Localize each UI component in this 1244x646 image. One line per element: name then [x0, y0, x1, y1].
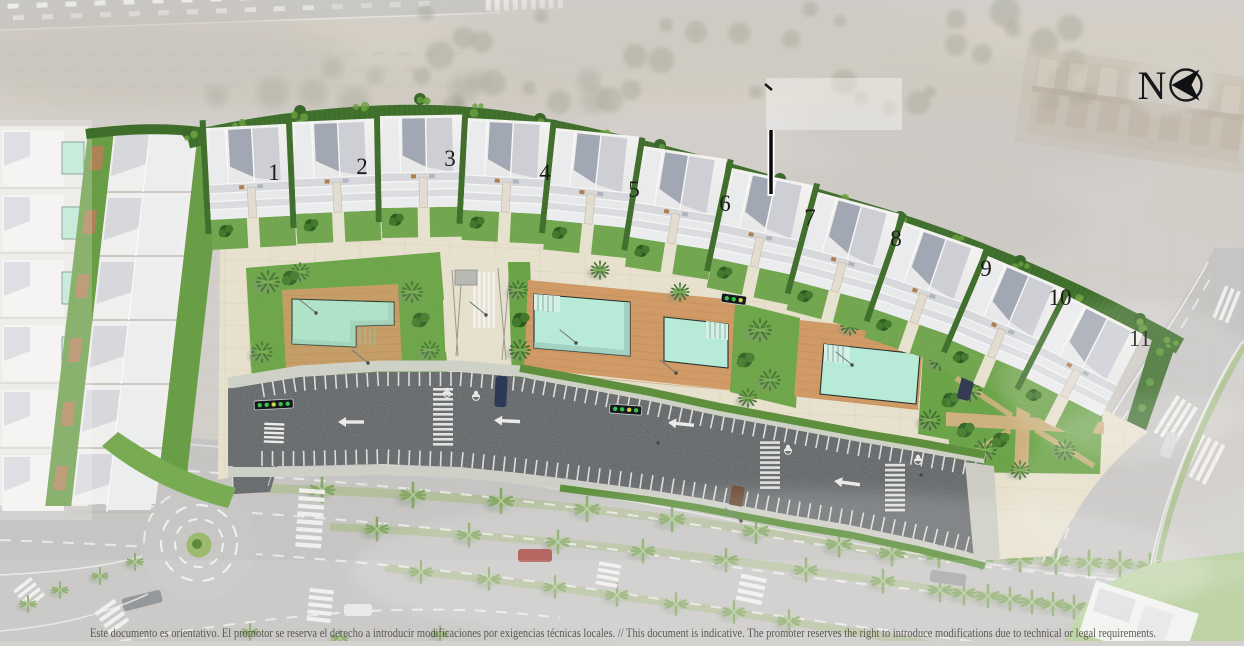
- svg-text:2: 2: [356, 154, 368, 179]
- svg-text:1: 1: [268, 160, 280, 185]
- svg-text:4: 4: [539, 160, 551, 185]
- svg-text:7: 7: [804, 205, 816, 230]
- svg-text:5: 5: [628, 177, 640, 202]
- svg-text:N: N: [1138, 63, 1167, 108]
- svg-text:Este documento es orientativo.: Este documento es orientativo. El promot…: [90, 625, 1156, 640]
- svg-text:6: 6: [719, 191, 731, 216]
- svg-text:8: 8: [890, 226, 902, 251]
- svg-text:10: 10: [1049, 285, 1072, 310]
- svg-text:3: 3: [444, 146, 456, 171]
- svg-text:9: 9: [980, 256, 992, 281]
